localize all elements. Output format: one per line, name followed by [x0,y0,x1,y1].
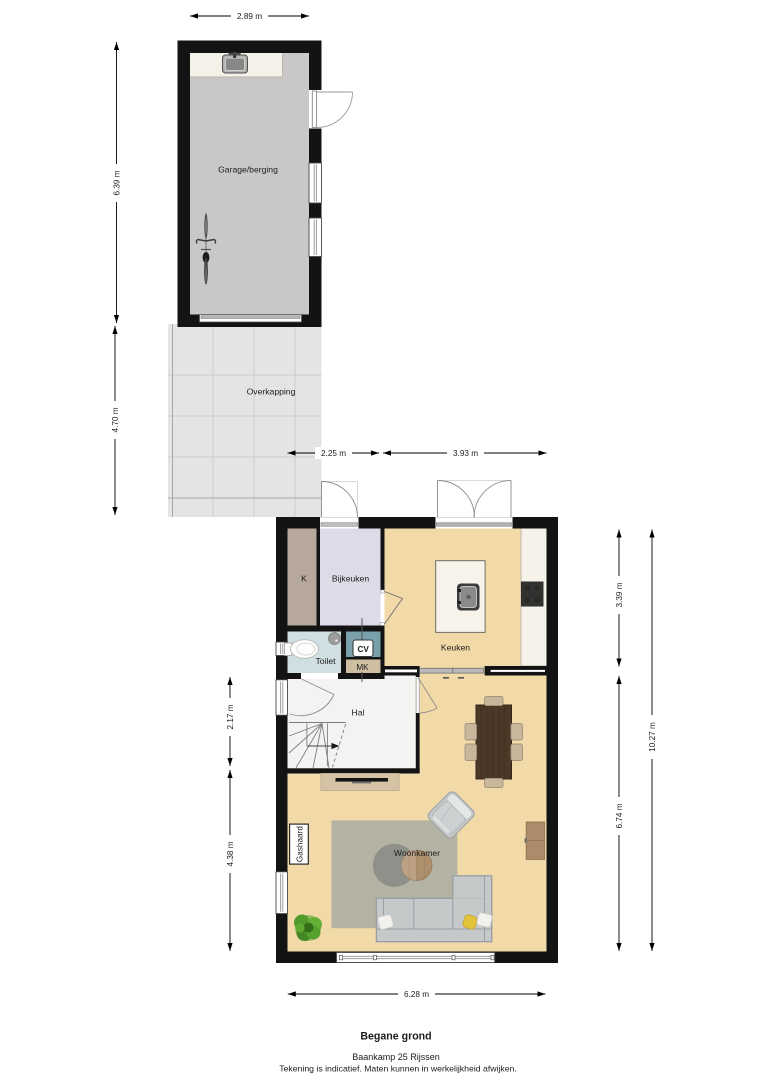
svg-text:4.38 m: 4.38 m [226,841,235,866]
svg-text:2.25 m: 2.25 m [321,449,346,458]
svg-text:Begane grond: Begane grond [360,1031,431,1043]
svg-text:6.28 m: 6.28 m [404,990,429,999]
svg-text:Gashaard: Gashaard [295,826,304,862]
svg-text:MK: MK [356,663,369,672]
svg-text:3.93 m: 3.93 m [453,449,478,458]
svg-text:Bijkeuken: Bijkeuken [332,574,369,584]
svg-text:Baankamp 25 Rijssen: Baankamp 25 Rijssen [352,1052,440,1062]
svg-text:Woonkamer: Woonkamer [394,848,440,858]
svg-text:4.70 m: 4.70 m [111,407,120,432]
svg-text:2.17 m: 2.17 m [226,704,235,729]
svg-text:10.27 m: 10.27 m [648,722,657,752]
svg-text:Overkapping: Overkapping [247,387,296,397]
svg-text:CV: CV [358,645,370,654]
svg-text:Hal: Hal [352,708,365,718]
svg-text:Toilet: Toilet [315,656,336,666]
svg-text:Garage/berging: Garage/berging [218,165,278,175]
svg-text:2.89 m: 2.89 m [237,12,262,21]
svg-text:Keuken: Keuken [441,643,470,653]
svg-text:Tekening is indicatief. Maten: Tekening is indicatief. Maten kunnen in … [279,1064,517,1074]
svg-text:6.39 m: 6.39 m [113,170,122,195]
svg-text:3.39 m: 3.39 m [615,582,624,607]
svg-text:6.74 m: 6.74 m [615,803,624,828]
svg-text:K: K [301,574,307,584]
